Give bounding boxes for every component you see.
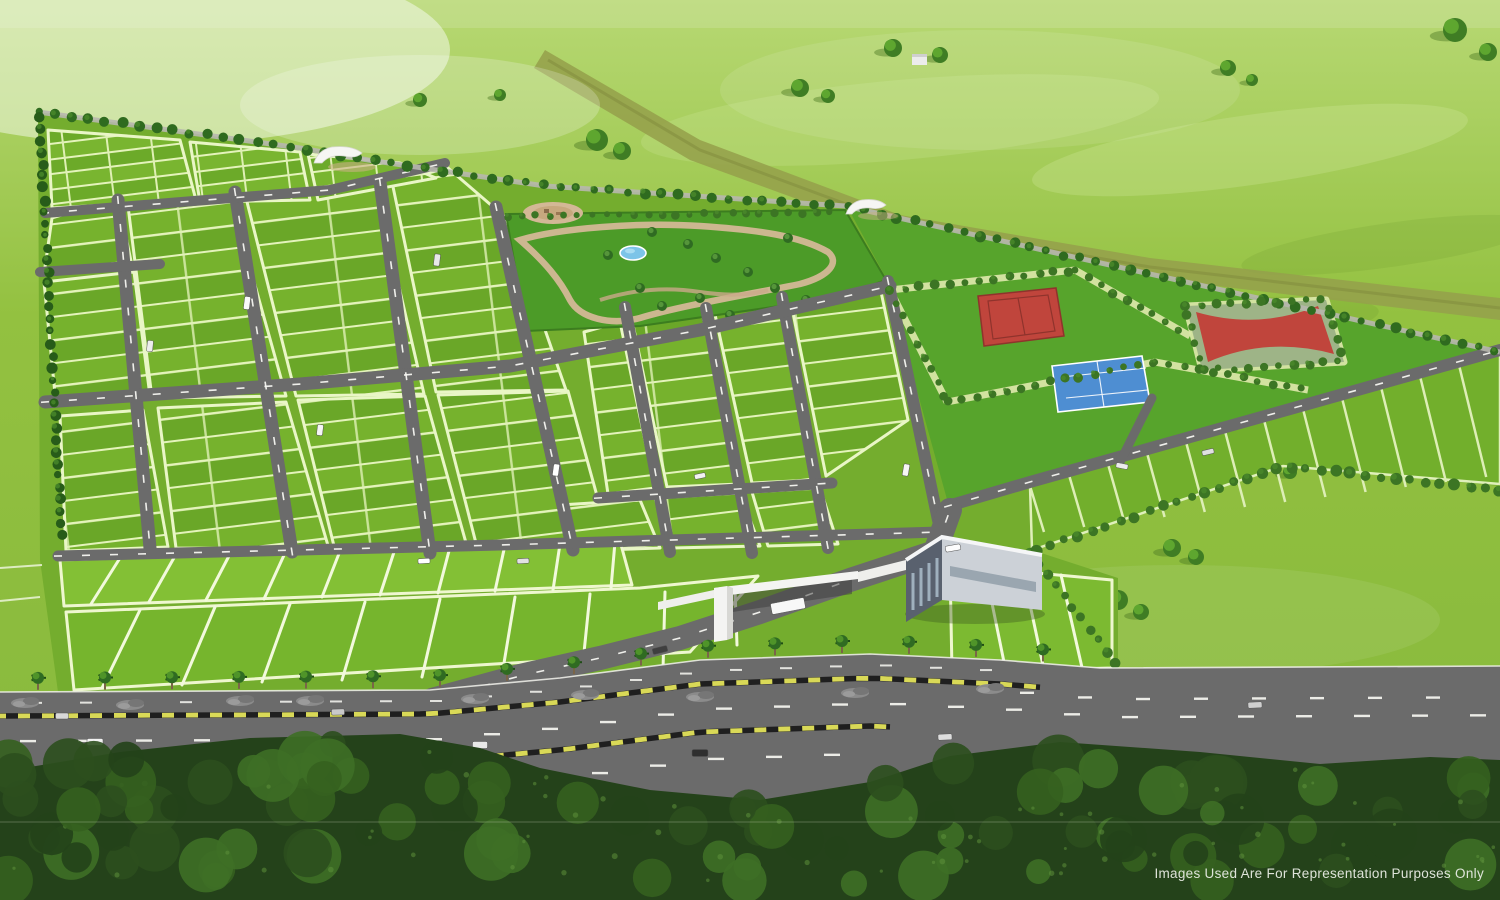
- pond-highlight: [625, 249, 635, 254]
- white-shed: [912, 54, 927, 65]
- aerial-render-page: Images Used Are For Representation Purpo…: [0, 0, 1500, 900]
- gate-pillar-shade: [727, 586, 733, 640]
- disclaimer-text: Images Used Are For Representation Purpo…: [1154, 866, 1484, 881]
- site-layout-aerial-render: Images Used Are For Representation Purpo…: [0, 0, 1500, 900]
- gate-pillar: [714, 586, 727, 642]
- park-pond: [620, 246, 646, 260]
- play-equipment: [544, 209, 549, 213]
- clubhouse: [905, 537, 1045, 624]
